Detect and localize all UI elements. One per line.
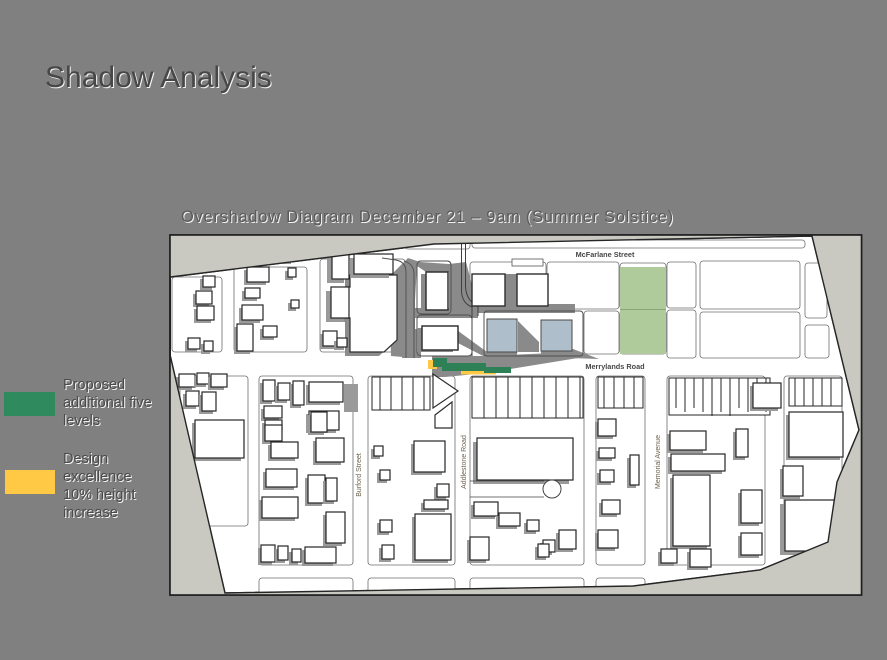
svg-text:McFarlane Street: McFarlane Street — [576, 250, 635, 259]
svg-text:Burford Street: Burford Street — [356, 453, 363, 497]
svg-text:Memorial Avenue: Memorial Avenue — [655, 435, 662, 489]
svg-text:Merrylands Road: Merrylands Road — [585, 362, 644, 371]
svg-text:Addlestone Road: Addlestone Road — [461, 435, 468, 489]
